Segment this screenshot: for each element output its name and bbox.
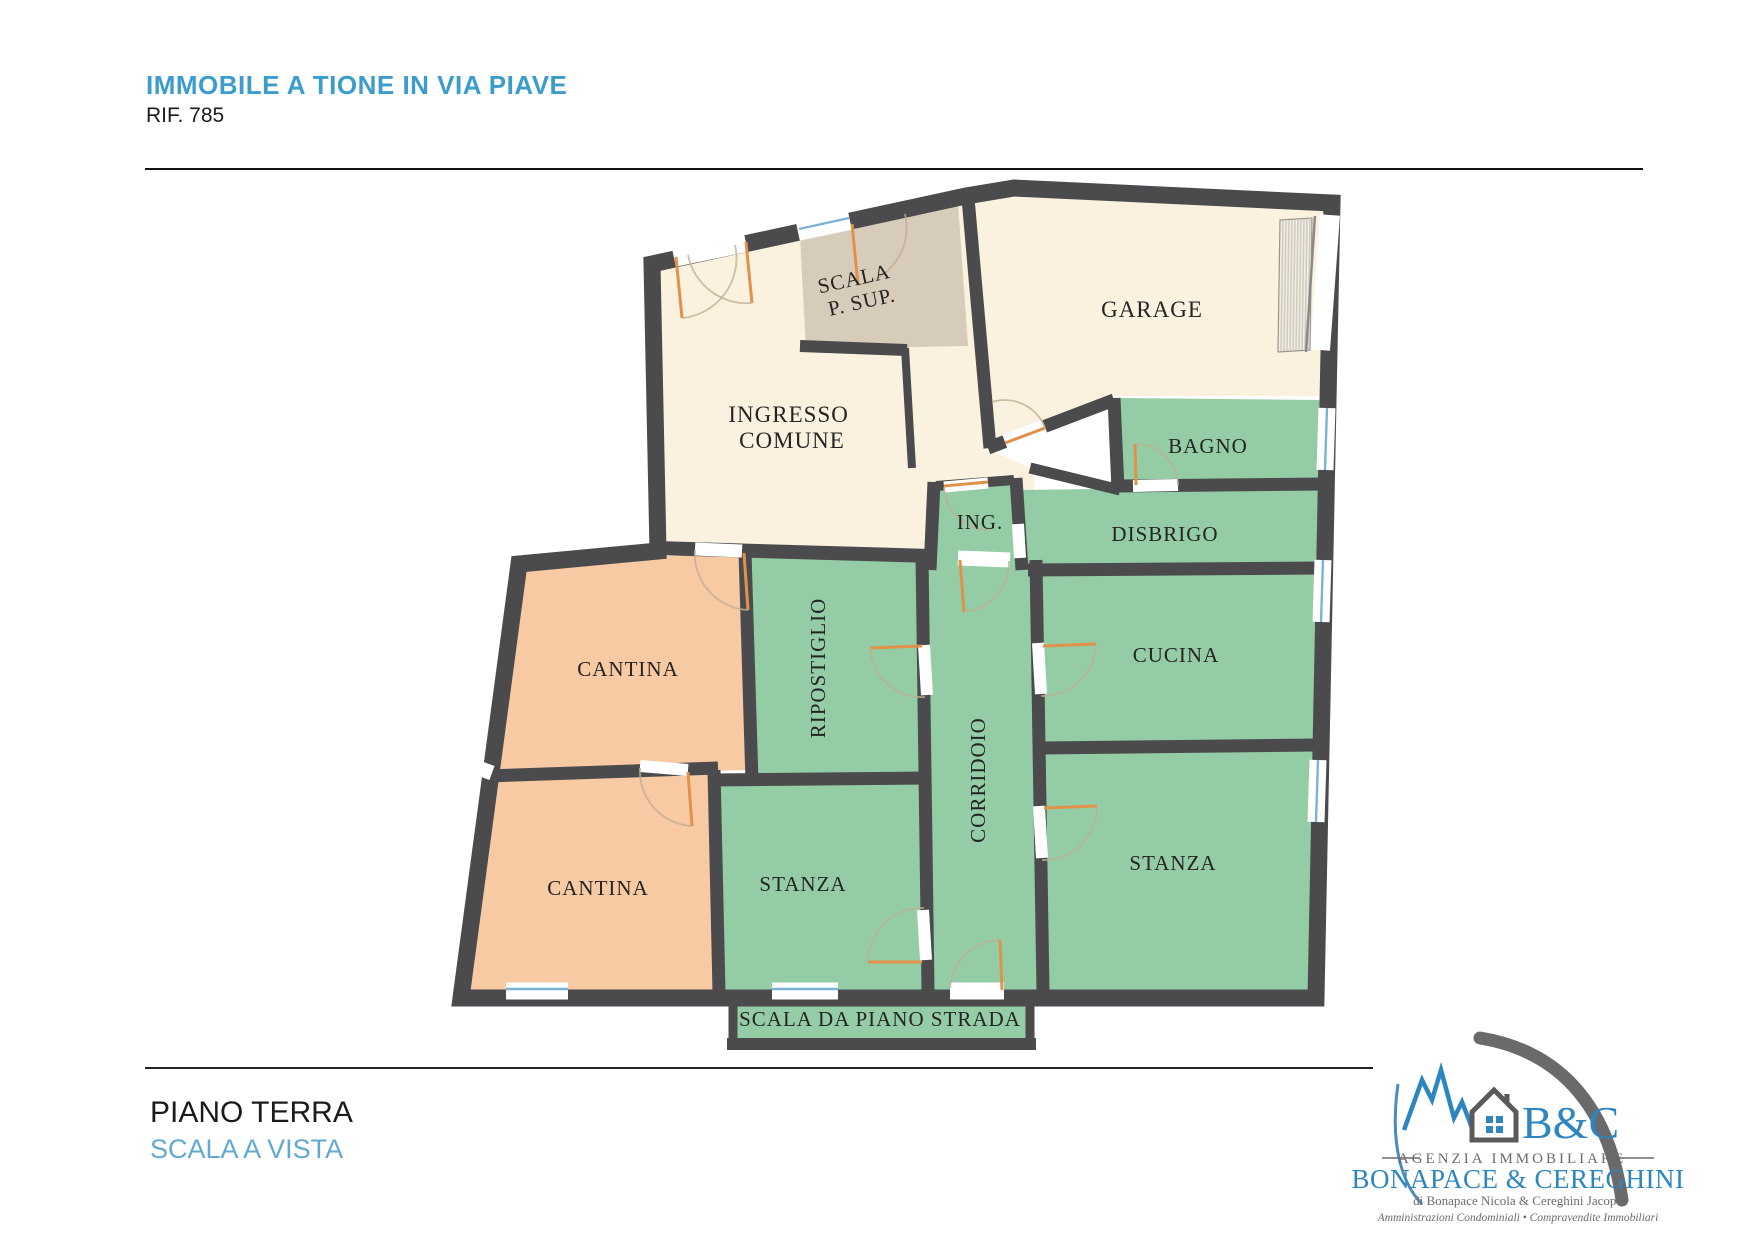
logo-house-icon: [1472, 1090, 1516, 1140]
stanza-right-door-hinge: [1044, 806, 1097, 808]
floor-note: SCALA A VISTA: [150, 1134, 343, 1165]
ripostiglio-door-hinge: [870, 646, 922, 648]
stair-access-door-hinge: [1000, 940, 1002, 990]
page: IMMOBILE A TIONE IN VIA PIAVE RIF. 785: [0, 0, 1753, 1240]
bottom-divider: [145, 1067, 1373, 1069]
logo-agency-name: BONAPACE & CEREGHINI: [1351, 1164, 1684, 1194]
label-bagno: BAGNO: [1168, 434, 1248, 458]
garage-door: [1278, 216, 1315, 352]
bagno-door-hinge: [1135, 444, 1136, 485]
label-stanza-center: STANZA: [759, 872, 846, 896]
label-cantina-lower: CANTINA: [547, 876, 649, 900]
logo-owners: di Bonapace Nicola & Cereghini Jacopo: [1413, 1193, 1623, 1208]
label-stanza-right: STANZA: [1129, 851, 1216, 875]
label-ing: ING.: [957, 510, 1004, 534]
logo-initials: B&C: [1522, 1097, 1619, 1148]
label-disbrigo: DISBRIGO: [1111, 522, 1218, 546]
label-scala-piano-strada: SCALA DA PIANO STRADA: [739, 1007, 1021, 1031]
label-ingresso-comune: INGRESSO COMUNE: [728, 402, 855, 453]
logo-mountains-icon: [1404, 1070, 1472, 1130]
logo-services: Amministrazioni Condominiali • Compraven…: [1377, 1212, 1659, 1224]
room-ripostiglio: [748, 556, 928, 782]
label-ripostiglio: RIPOSTIGLIO: [806, 598, 830, 739]
label-cantina-upper: CANTINA: [577, 657, 679, 681]
agency-logo: B&C AGENZIA IMMOBILIARE BONAPACE & CEREG…: [1351, 1038, 1684, 1224]
label-corridoio: CORRIDOIO: [966, 717, 990, 843]
cucina-door-hinge: [1043, 644, 1096, 646]
label-garage: GARAGE: [1101, 297, 1203, 322]
floor-name: PIANO TERRA: [150, 1096, 353, 1130]
floorplan-drawing: SCALA P. SUP. GARAGE INGRESSO COMUNE BAG…: [0, 0, 1753, 1240]
label-cucina: CUCINA: [1133, 643, 1220, 667]
